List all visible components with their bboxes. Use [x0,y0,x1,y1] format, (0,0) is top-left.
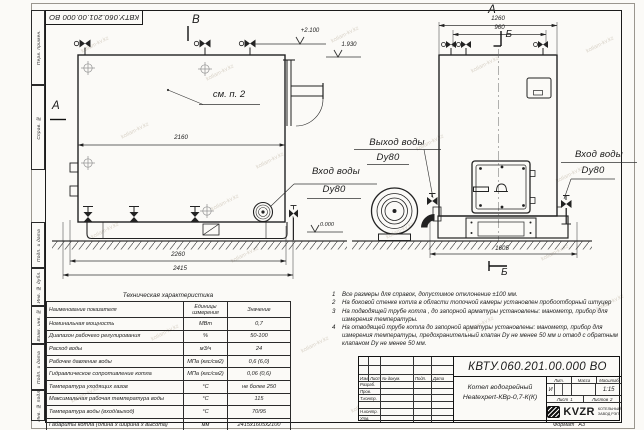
note-number: 2 [332,299,342,307]
spec-cell: не более 250 [228,380,291,393]
lit-value: И [547,384,555,395]
note-text: На боковой стенке котла в области топочн… [342,299,618,307]
title-block-right: Лит. Масса Масштаб И 1:15 Лист 1 Листов … [546,377,621,422]
sig-label: Пров. [359,389,381,395]
sig-row [359,402,453,409]
ground-front [352,241,592,250]
spec-cell: Габариты котла (длина х ширина х высота) [47,418,184,430]
spec-cell: °С [184,380,228,393]
change-row [359,366,453,375]
spec-cell: мм [184,418,228,430]
company-subtitle: КОТЕЛЬНЫЙ ЗАВОД РЭП [598,407,621,416]
elevation-top: +2.100 [301,28,320,34]
company-logo: KVZR КОТЕЛЬНЫЙ ЗАВОД РЭП [547,403,621,421]
sig-label: Утв. [359,416,381,423]
front-inlet-label: Вход воды [575,150,623,160]
col-izm: Изм. [359,375,369,381]
see-note-annotation: см. п. 2 [213,90,245,100]
door-hinge-bottom [530,198,535,204]
spec-cell: °С [184,406,228,419]
control-box [527,78,551,98]
sig-row: Т.контр. [359,395,453,402]
spec-row: Максимальная рабочая температура воды°С1… [47,393,291,406]
title-block: КВТУ.060.201.00.000 ВО Изм. Лист № докум… [358,356,620,421]
spec-cell: Диапазон рабочего регулирования [47,330,184,343]
spec-table-title: Техническая характеристика [123,292,213,299]
sig-row: Утв. [359,416,453,423]
spec-row: Диапазон рабочего регулирования%50-100 [47,330,291,343]
sig-row: Разраб. [359,382,453,389]
spec-cell: 2415х1605х2100 [228,418,291,430]
product-name-line2: Heatexpert-КВр-0,7-К(К) [454,393,546,403]
title-block-signature-grid: Изм. Лист № докум. Подп. Дата Разраб. Пр… [359,357,453,422]
dim-1260: 1260 [491,16,505,22]
note-text: На подводящей трубе котла , до запорной … [342,308,618,324]
sheets-cell: Листов 2 [584,396,621,402]
note-item: 4На отводящей трубе котла до запорной ар… [332,324,618,348]
section-mark-v: В [192,15,200,27]
company-name: KVZR [563,406,595,418]
col-dokum: № докум. [381,375,414,381]
flue-outlet [283,60,323,126]
dim-960: 960 [494,25,504,31]
spec-row: Номинальная мощностьМВт0,7 [47,318,291,331]
grid-header-row: Изм. Лист № докум. Подп. Дата [359,375,453,382]
spec-cell: 0,6 (6,0) [228,355,291,368]
bottom-valves-side [83,207,200,223]
boiler-side-view [52,40,347,250]
front-outlet-dy: Dy80 [377,153,400,163]
spec-cell: 70/95 [228,406,291,419]
spec-header-name: Наименование показателя [47,302,184,318]
dim-1605: 1605 [495,246,509,252]
dim-2160: 2160 [174,135,188,141]
format-value: А3 [578,422,585,428]
mass-value [572,384,597,395]
spec-cell: 115 [228,393,291,406]
front-inlet-dy: Dy80 [582,166,605,176]
sig-label [359,402,381,408]
spec-cell: МПа (кгс/см2) [184,355,228,368]
crosshair-marks [81,61,214,218]
col-podp: Подп. [414,375,432,381]
spec-cell: Температура уходящих газов [47,380,184,393]
lit-cells: И [547,384,572,395]
side-inlet-dy: Dy80 [323,185,346,195]
spec-cell: Гидравлическое сопротивление котла [47,368,184,381]
sheets-value: 2 [610,397,612,402]
note-number: 3 [332,308,342,324]
format-note: Формат А3 [553,422,585,428]
drawing-sheet: kotlam-kv.kzkotlam-kv.kzkotlam-kv.kzkotl… [0,0,644,430]
dim-2415: 2415 [173,266,187,272]
furnace-door [472,161,535,213]
note-text: Все размеры для справок, допустимое откл… [342,291,618,299]
side-inlet-label: Вход воды [312,167,360,177]
spec-cell: 0,06 (0,6) [228,368,291,381]
water-inlet-valve [557,196,572,225]
rear-stub-lower [70,186,78,196]
spec-row: Расход водым3/ч24 [47,343,291,356]
sheet-row: Лист 1 Листов 2 [547,396,621,403]
col-data: Дата [432,375,453,381]
note-number: 1 [332,291,342,299]
product-name: Котел водогрейный Heatexpert-КВр-0,7-К(К… [453,377,546,422]
spec-header-units: Единицы измерения [184,302,228,318]
note-item: 1Все размеры для справок, допустимое отк… [332,291,618,299]
scale-value: 1:15 [596,384,621,395]
spec-table: Наименование показателя Единицы измерени… [46,301,291,430]
spec-row: Температура воды (вход/выход)°С70/95 [47,406,291,419]
doc-number: КВТУ.060.201.00.000 ВО [453,357,621,377]
note-number: 4 [332,324,342,348]
spec-header-value: Значение [228,302,291,318]
ground-side [52,241,347,250]
spec-cell: 50-100 [228,330,291,343]
spec-row: Рабочее давление водыМПа (кгс/см2)0,6 (6… [47,355,291,368]
top-valves-front [442,41,549,55]
company-sub-line2: ЗАВОД РЭП [598,412,621,417]
sheet-cell: Лист 1 [547,396,584,402]
door-lock-icon [494,184,508,192]
spec-cell: м3/ч [184,343,228,356]
format-label: Формат [553,422,574,428]
lit-label: Лит. [547,377,572,383]
base-skid-front [438,216,568,238]
blower-fan [372,188,418,241]
col-list: Лист [369,375,381,381]
note-item: 3На подводящей трубе котла , до запорной… [332,308,618,324]
top-valves-side [74,40,255,56]
sheet-value: 1 [570,397,572,402]
lit-mass-scale-header: Лит. Масса Масштаб [547,377,621,384]
section-mark-b-bottom: Б [501,268,508,278]
spec-cell: Рабочее давление воды [47,355,184,368]
spec-cell: Номинальная мощность [47,318,184,331]
section-mark-b-mid: Б [506,30,513,40]
mass-label: Масса [572,377,597,383]
spec-cell: 24 [228,343,291,356]
rear-stub-upper [70,163,78,172]
note-item: 2На боковой стенке котла в области топоч… [332,299,618,307]
sheet-label: Лист [557,397,568,402]
right-stub-valve [289,206,298,241]
elevation-flue: 1.930 [341,42,356,48]
sig-row: Пров. [359,389,453,396]
spec-cell: 0,7 [228,318,291,331]
kvzr-logo-icon [547,406,560,418]
front-outlet-label: Выход воды [369,138,424,148]
section-mark-a-left: А [52,101,60,113]
sheets-label: Листов [592,397,608,402]
spec-cell: Максимальная рабочая температура воды [47,393,184,406]
spec-cell: °С [184,393,228,406]
sig-label: Разраб. [359,382,381,388]
door-hinge-top [530,171,535,177]
elevation-zero: 0.000 [320,223,334,229]
notes-block: 1Все размеры для справок, допустимое отк… [332,291,618,348]
spec-cell: МПа (кгс/см2) [184,368,228,381]
spec-row: Температура уходящих газов°Сне более 250 [47,380,291,393]
sig-label: Н.контр. [359,409,381,415]
water-inlet-flange [254,203,273,222]
spec-row: Гидравлическое сопротивление котлаМПа (к… [47,368,291,381]
note-text: На отводящей трубе котла до запорной арм… [342,324,618,348]
base-skid-side [87,222,287,239]
spec-cell: % [184,330,228,343]
spec-row: Габариты котла (длина х ширина х высота)… [47,418,291,430]
change-row [359,357,453,366]
spec-cell: МВт [184,318,228,331]
lit-mass-scale-values: И 1:15 [547,384,621,396]
dim-2260: 2260 [171,252,185,258]
spec-cell: Температура воды (вход/выход) [47,406,184,419]
spec-cell: Расход воды [47,343,184,356]
spec-header-row: Наименование показателя Единицы измерени… [47,302,291,318]
product-name-line1: Котел водогрейный [454,383,546,393]
sig-label: Т.контр. [359,395,381,401]
scale-label: Масштаб [597,377,621,383]
